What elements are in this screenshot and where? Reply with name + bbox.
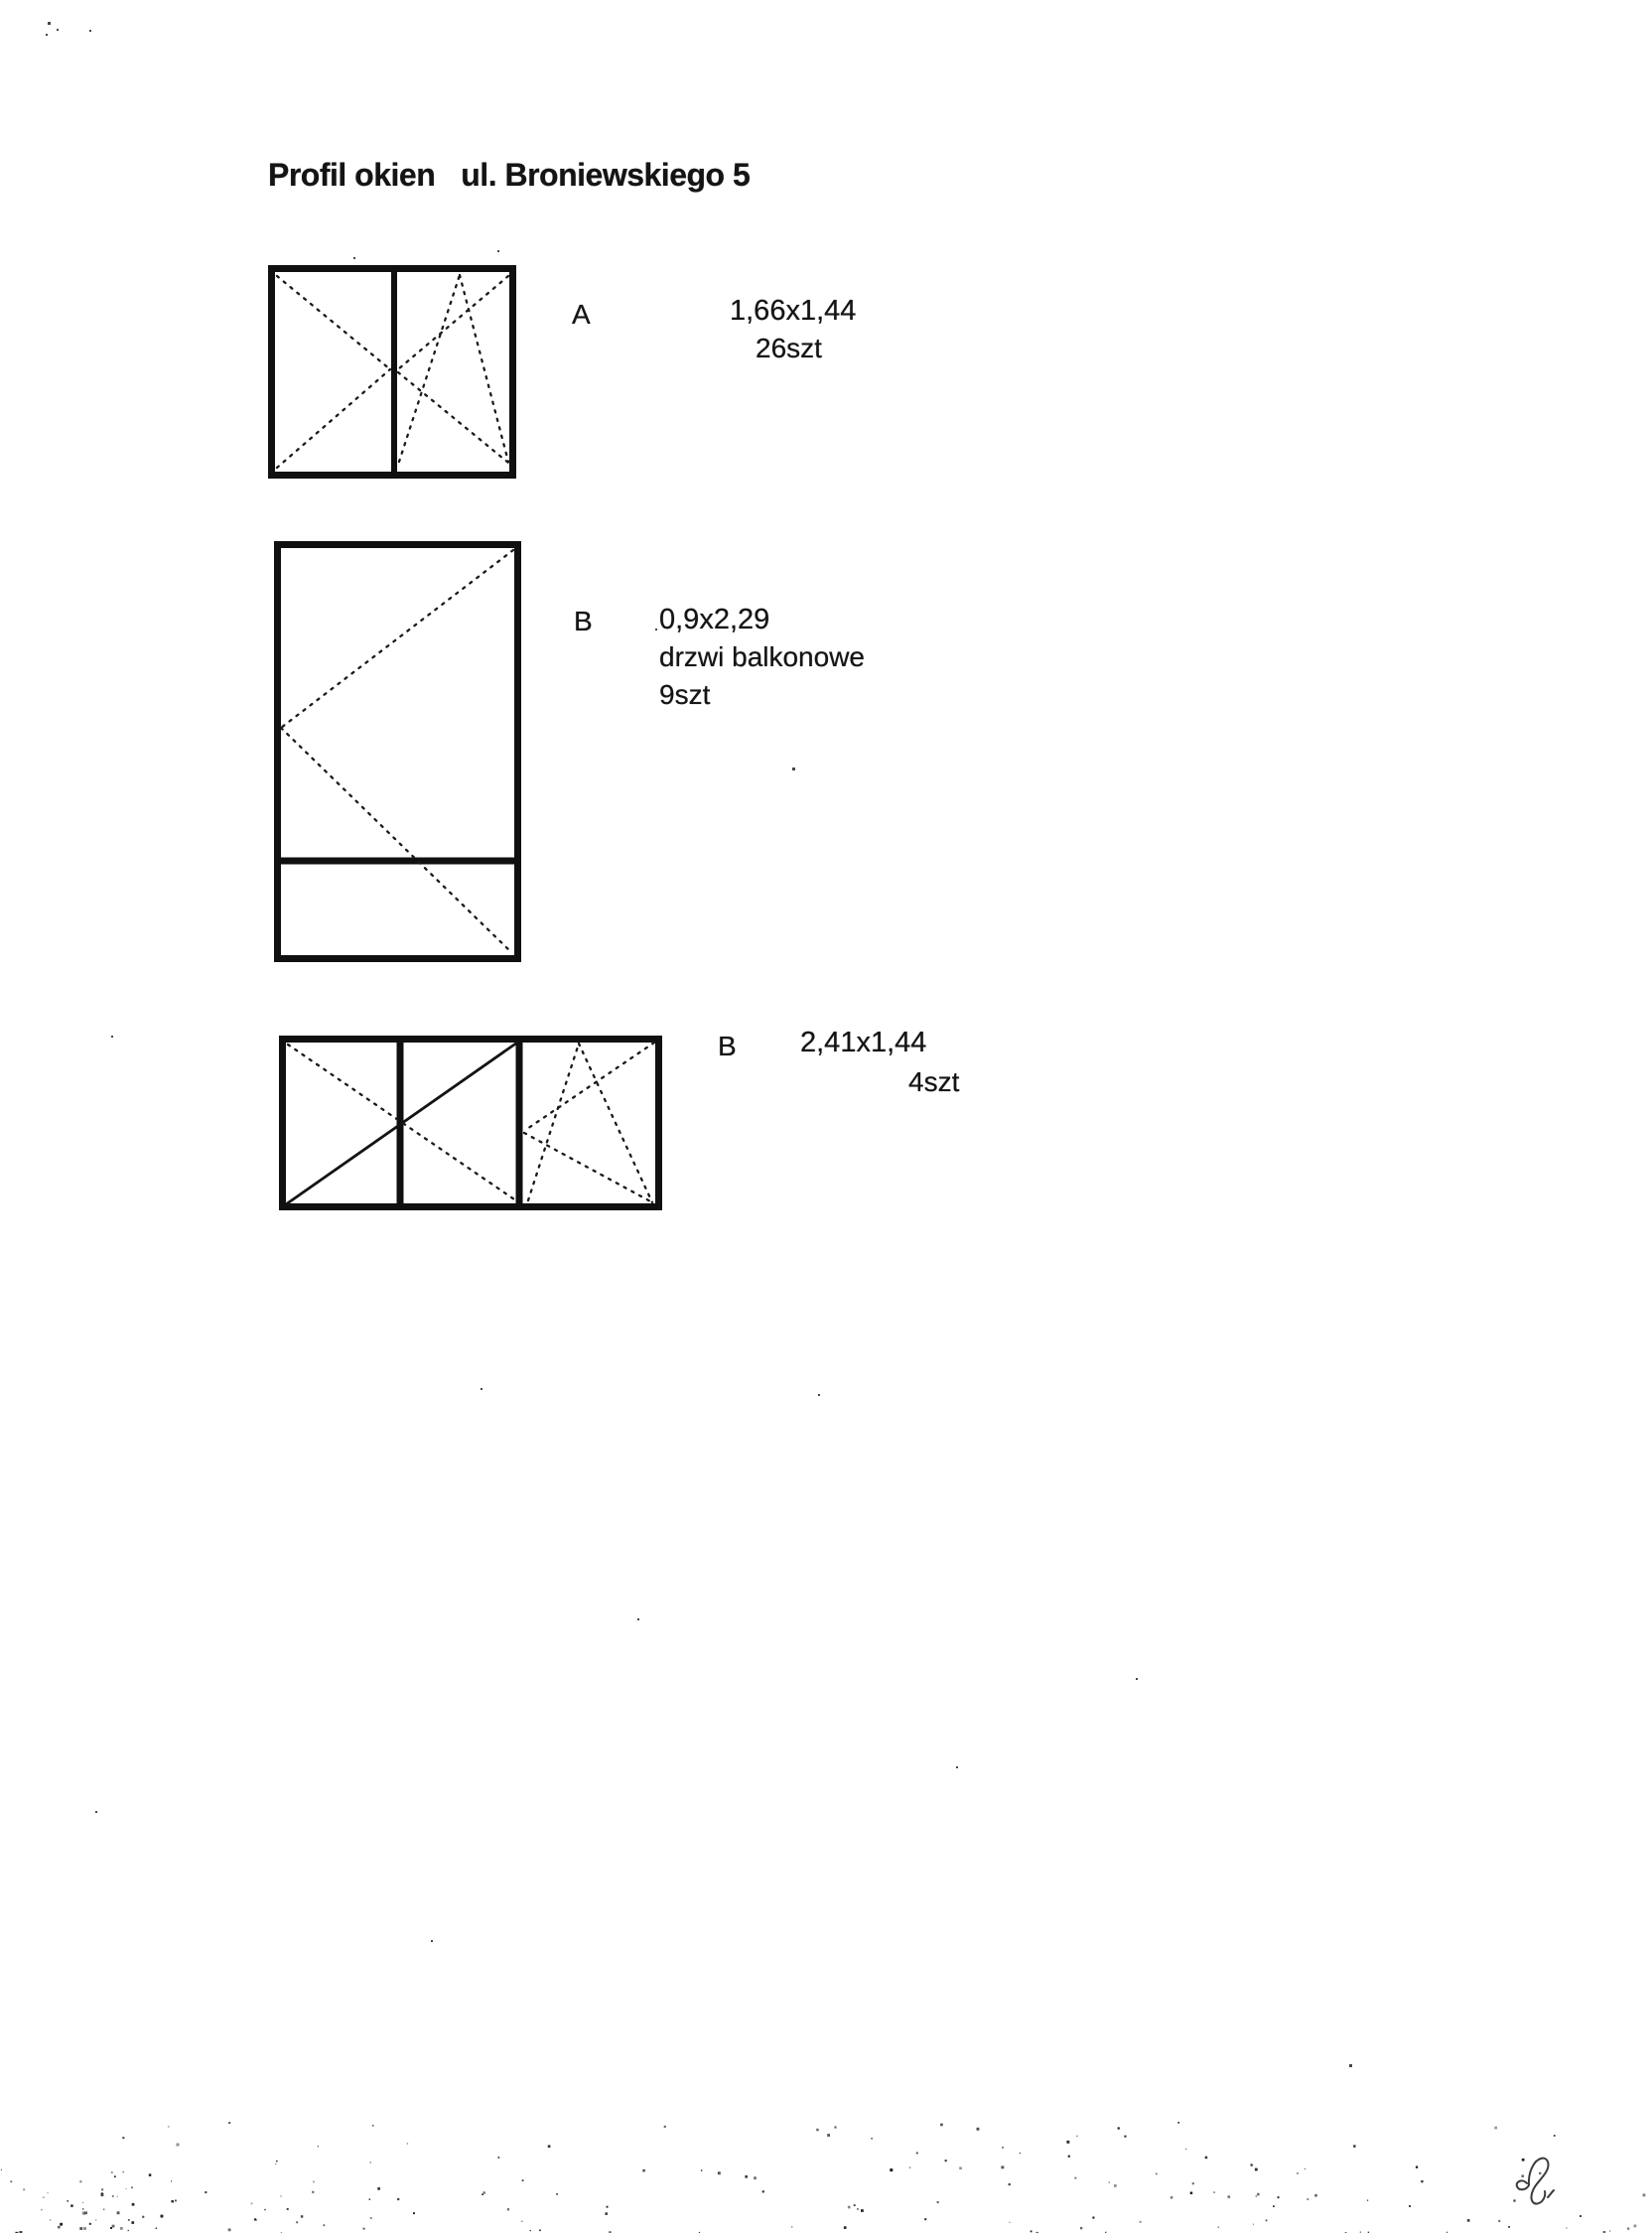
item-b1-type-note: drzwi balkonowe (659, 643, 865, 671)
item-b1-quantity: 9szt (659, 681, 710, 709)
handwritten-page-number (1511, 2153, 1559, 2210)
page-title-left: Profil okien (268, 157, 435, 193)
scanned-document-page: Profil okienul. Broniewskiego 5 A 1,66x1… (0, 0, 1652, 2233)
scan-noise (0, 0, 1652, 2233)
item-b1-dimensions: 0,9x2,29 (659, 606, 769, 634)
page-title-address: ul. Broniewskiego 5 (461, 157, 750, 193)
item-b1-label: B (574, 608, 593, 635)
window-a-left-sash-opening-lines (277, 276, 390, 468)
window-b2-frame (283, 1040, 659, 1207)
window-a-right-sash-tilt-turn-lines (398, 275, 508, 463)
item-a-label: A (572, 301, 591, 329)
window-diagram-a (268, 265, 516, 479)
balcony-door-diagram-b (274, 541, 521, 962)
item-b2-label: B (718, 1033, 737, 1060)
item-b2-quantity: 4szt (908, 1068, 959, 1096)
balcony-door-opening-lines (281, 550, 513, 953)
item-a-quantity: 26szt (756, 335, 822, 362)
balcony-door-frame (278, 545, 518, 959)
item-a-dimensions: 1,66x1,44 (730, 297, 856, 326)
window-diagram-b2 (279, 1036, 662, 1210)
item-b2-dimensions: 2,41x1,44 (800, 1029, 926, 1057)
window-b2-right-sash-tilt-turn-lines (524, 1043, 654, 1202)
page-title: Profil okienul. Broniewskiego 5 (268, 159, 750, 191)
